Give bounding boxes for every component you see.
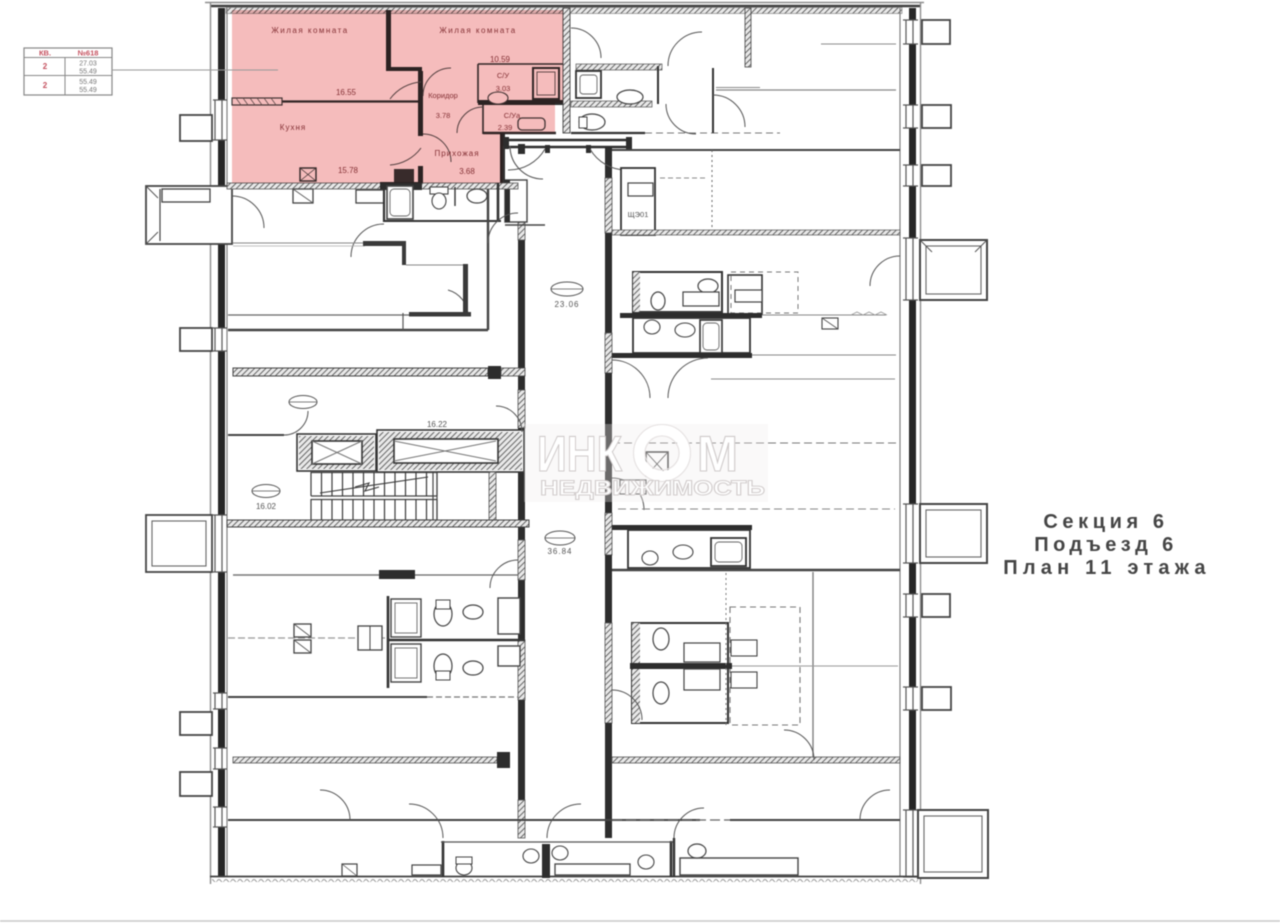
svg-text:36.84: 36.84 xyxy=(547,547,572,556)
svg-text:2: 2 xyxy=(43,81,48,90)
svg-text:ИНК: ИНК xyxy=(537,426,622,482)
svg-text:Секция 6: Секция 6 xyxy=(1043,511,1168,533)
svg-text:НЕДВИЖИМОСТЬ: НЕДВИЖИМОСТЬ xyxy=(540,477,765,500)
svg-text:Подъезд 6: Подъезд 6 xyxy=(1034,534,1177,556)
svg-text:23.06: 23.06 xyxy=(554,300,579,309)
svg-text:55.49: 55.49 xyxy=(79,87,97,94)
svg-text:№618: №618 xyxy=(78,49,99,58)
svg-text:ЩЭ01: ЩЭ01 xyxy=(628,210,649,219)
svg-text:27.03: 27.03 xyxy=(79,61,97,68)
svg-text:16.22: 16.22 xyxy=(427,420,448,429)
svg-text:План 11 этажа: План 11 этажа xyxy=(1003,557,1210,579)
svg-text:16.02: 16.02 xyxy=(256,502,277,511)
svg-text:2: 2 xyxy=(43,62,48,71)
svg-text:55.49: 55.49 xyxy=(79,79,97,86)
svg-text:55.49: 55.49 xyxy=(79,69,97,76)
svg-text:М: М xyxy=(697,426,738,482)
svg-text:КВ.: КВ. xyxy=(39,49,51,58)
